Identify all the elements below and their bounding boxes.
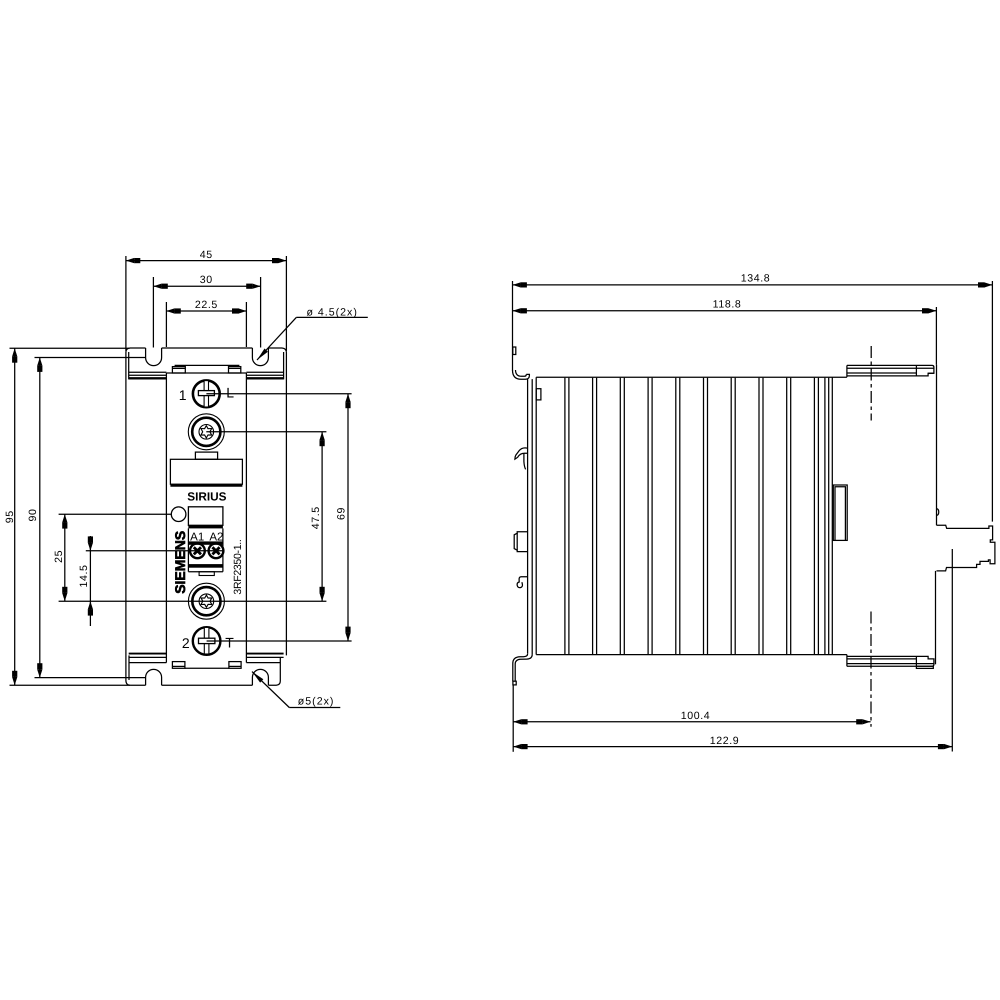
svg-text:30: 30 <box>200 274 213 286</box>
svg-text:3RF2350-1..: 3RF2350-1.. <box>232 540 244 595</box>
svg-text:SIRIUS: SIRIUS <box>187 490 226 504</box>
svg-text:134.8: 134.8 <box>741 273 771 285</box>
svg-text:47.5: 47.5 <box>310 506 322 529</box>
svg-text:25: 25 <box>53 550 65 563</box>
svg-text:90: 90 <box>27 509 39 522</box>
svg-text:100.4: 100.4 <box>681 710 711 722</box>
svg-text:95: 95 <box>4 510 16 523</box>
svg-text:L: L <box>226 385 234 401</box>
svg-text:118.8: 118.8 <box>713 299 742 311</box>
svg-text:ø5(2x): ø5(2x) <box>298 696 335 708</box>
svg-text:22.5: 22.5 <box>195 299 218 311</box>
svg-text:ø 4.5(2x): ø 4.5(2x) <box>307 307 358 319</box>
svg-text:1: 1 <box>179 387 187 403</box>
svg-text:122.9: 122.9 <box>710 735 740 747</box>
svg-text:14.5: 14.5 <box>78 564 90 587</box>
svg-text:45: 45 <box>200 249 213 261</box>
svg-text:T: T <box>225 634 234 650</box>
svg-text:69: 69 <box>336 507 348 520</box>
svg-text:SIEMENS: SIEMENS <box>172 531 188 594</box>
svg-text:2: 2 <box>182 635 190 651</box>
